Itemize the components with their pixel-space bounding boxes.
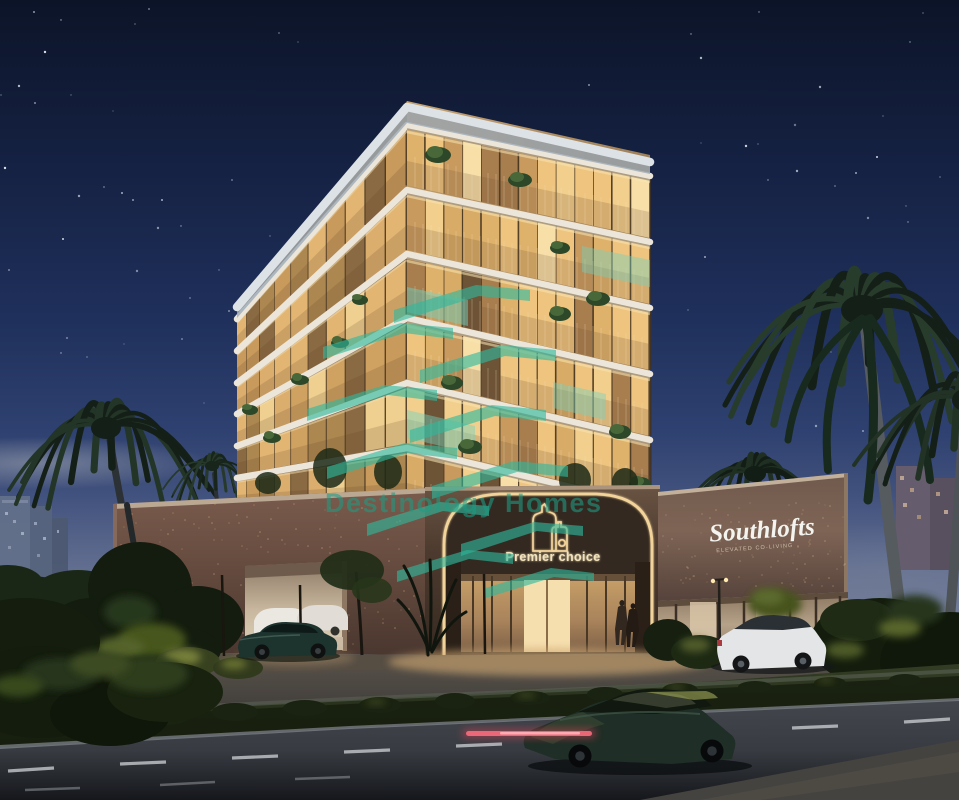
svg-text:Destinology Homes: Destinology Homes (325, 488, 603, 518)
svg-text:Premier choice: Premier choice (505, 550, 600, 564)
